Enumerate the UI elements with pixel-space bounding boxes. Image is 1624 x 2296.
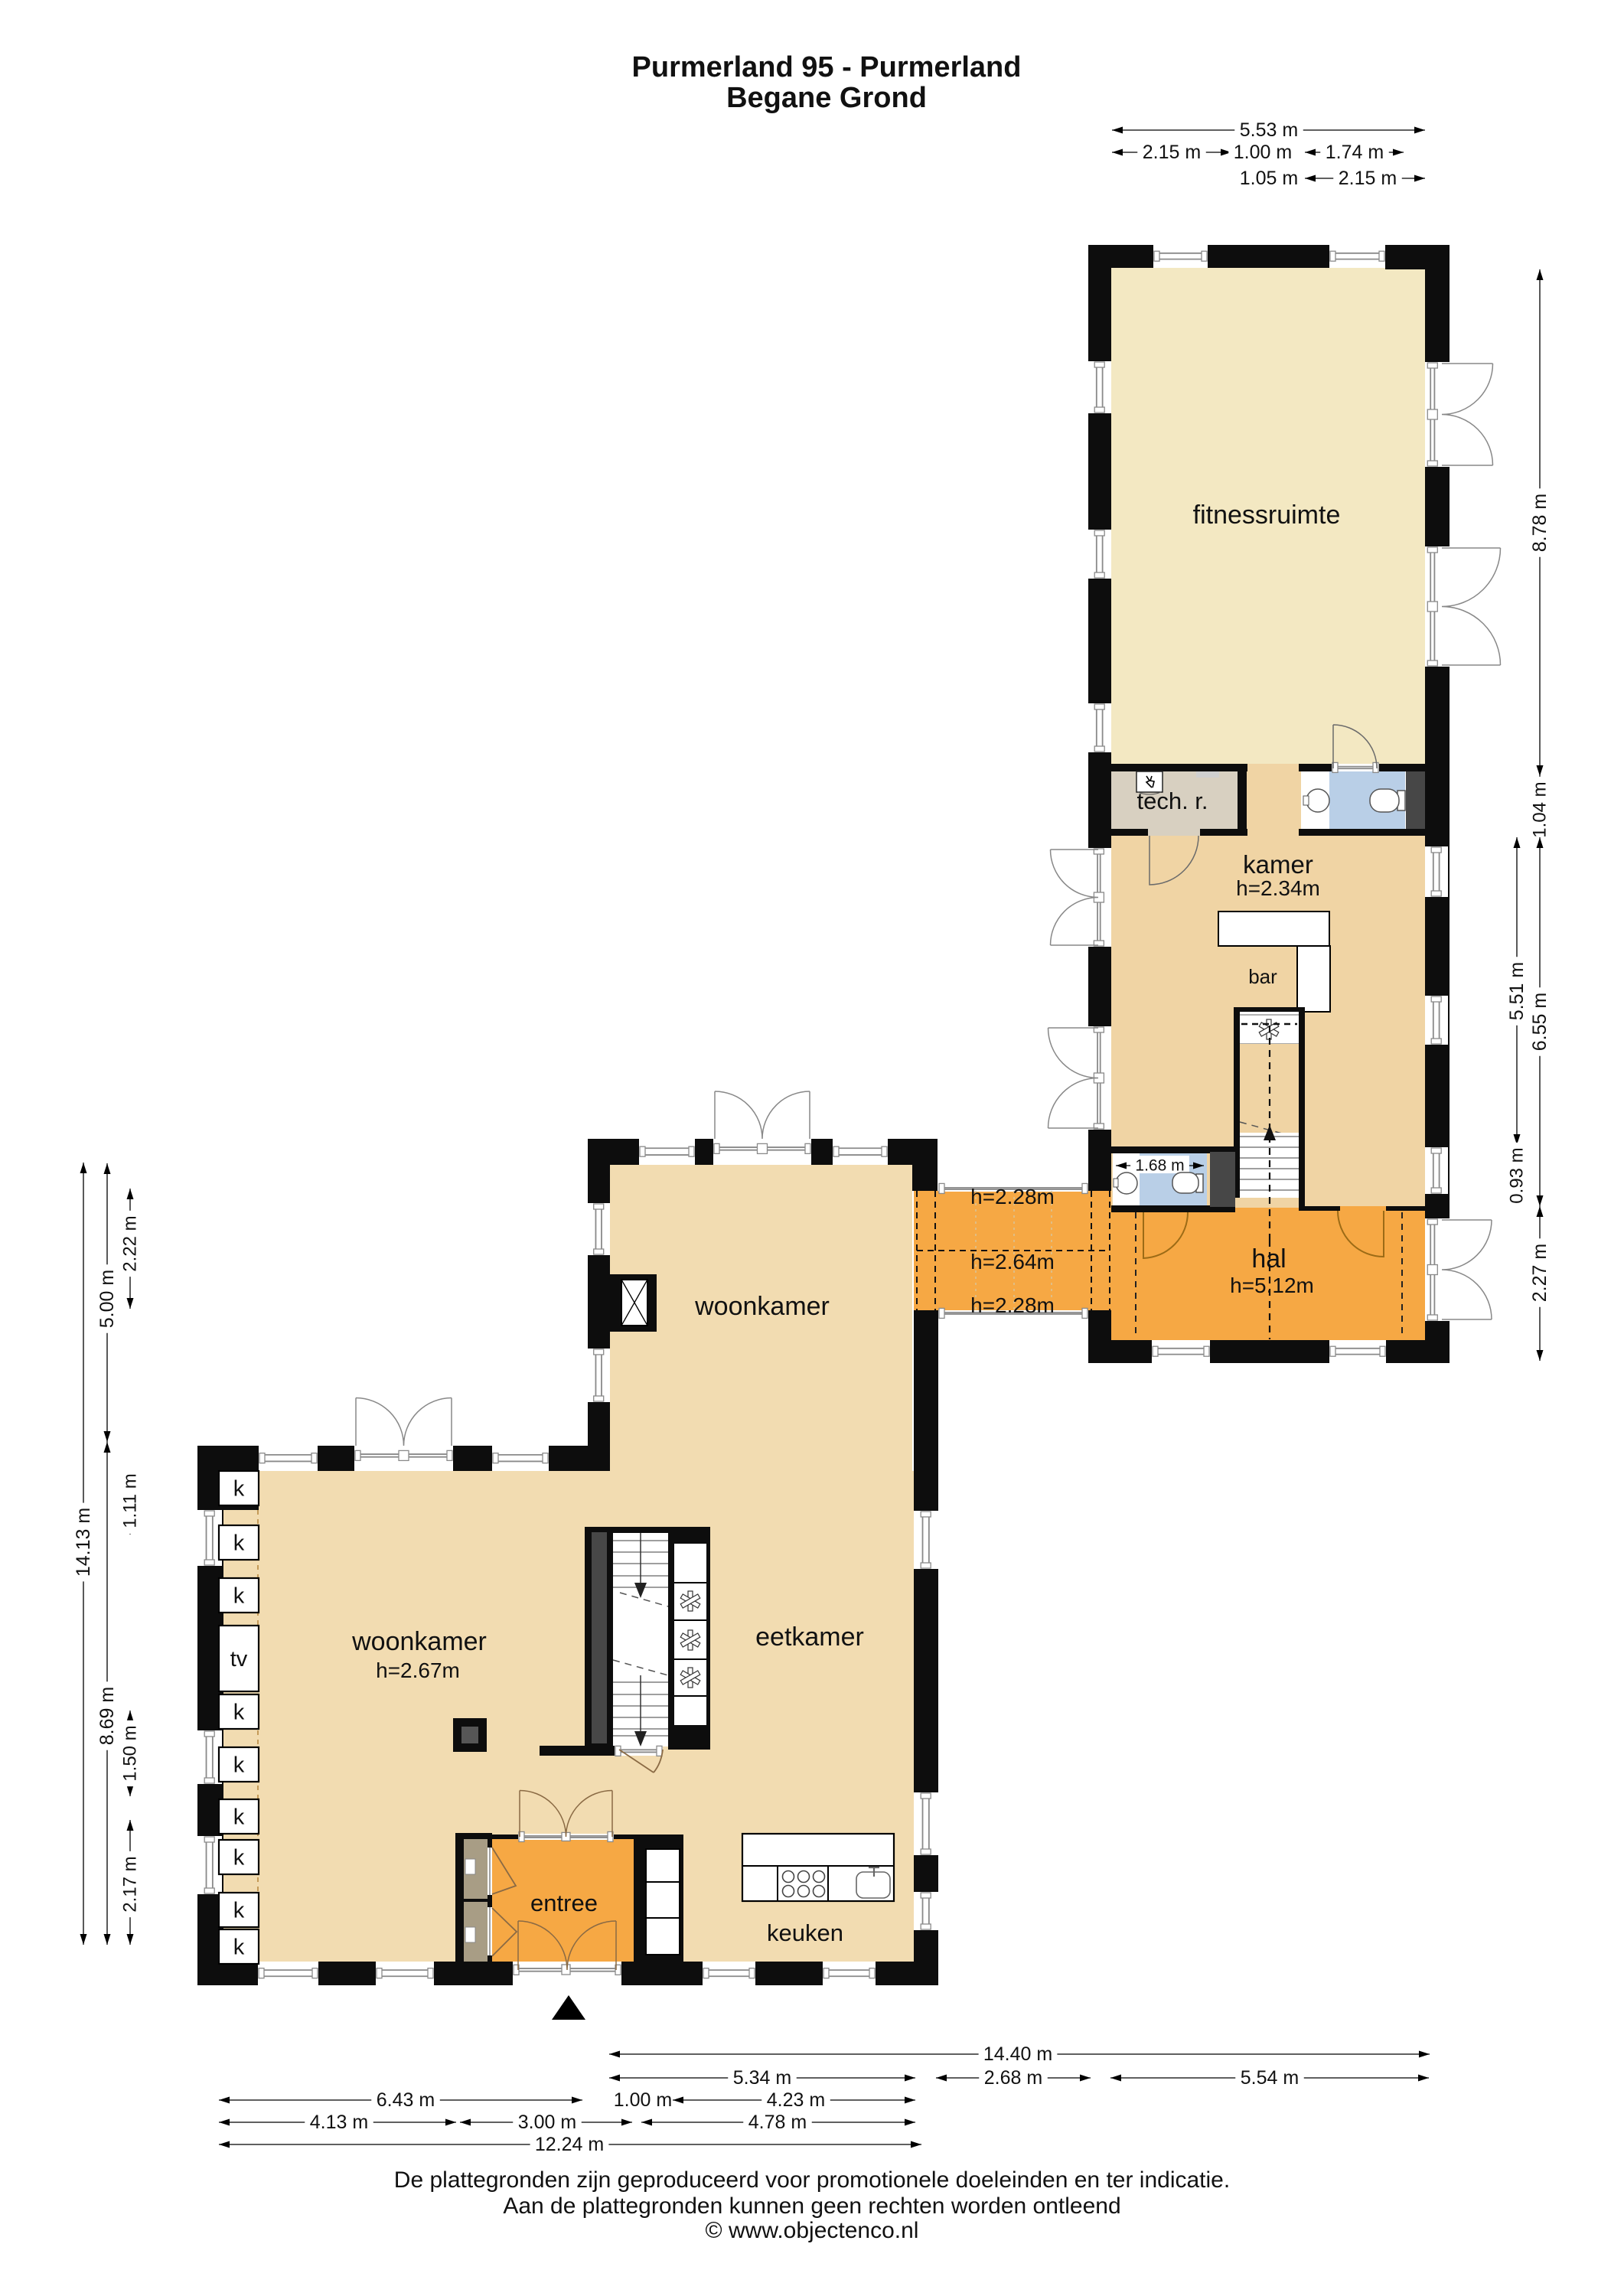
svg-text:keuken: keuken	[767, 1919, 843, 1946]
svg-text:4.13 m: 4.13 m	[310, 2112, 368, 2133]
svg-text:2.68 m: 2.68 m	[984, 2067, 1042, 2089]
svg-text:k: k	[233, 1753, 245, 1778]
svg-text:k: k	[233, 1936, 245, 1960]
svg-text:5.51 m: 5.51 m	[1506, 962, 1528, 1020]
svg-text:0.93 m: 0.93 m	[1507, 1147, 1528, 1203]
svg-text:1.00 m: 1.00 m	[614, 2089, 672, 2111]
svg-text:h=2.64m: h=2.64m	[970, 1250, 1055, 1274]
svg-text:1.11 m: 1.11 m	[120, 1473, 141, 1528]
svg-text:bar: bar	[1248, 965, 1277, 988]
svg-text:1.74 m: 1.74 m	[1326, 142, 1384, 163]
svg-text:2.22 m: 2.22 m	[120, 1215, 141, 1271]
svg-text:5.53 m: 5.53 m	[1240, 119, 1298, 141]
svg-text:2.27 m: 2.27 m	[1529, 1244, 1551, 1302]
svg-text:k: k	[233, 1899, 245, 1923]
svg-text:k: k	[233, 1531, 245, 1556]
svg-text:4.78 m: 4.78 m	[748, 2112, 807, 2133]
svg-text:k: k	[233, 1701, 245, 1725]
svg-text:k: k	[233, 1584, 245, 1609]
svg-text:14.40 m: 14.40 m	[983, 2043, 1052, 2065]
svg-text:hal: hal	[1251, 1244, 1286, 1274]
svg-text:2.17 m: 2.17 m	[120, 1856, 141, 1912]
svg-text:12.24 m: 12.24 m	[535, 2134, 604, 2155]
svg-text:h=2.28m: h=2.28m	[970, 1185, 1055, 1208]
svg-text:1.04 m: 1.04 m	[1530, 781, 1551, 837]
svg-text:8.78 m: 8.78 m	[1529, 494, 1551, 552]
svg-text:5.34 m: 5.34 m	[733, 2067, 791, 2089]
svg-text:kamer: kamer	[1243, 850, 1313, 879]
svg-text:h=5.12m: h=5.12m	[1230, 1274, 1314, 1297]
svg-text:2.15 m: 2.15 m	[1143, 142, 1201, 163]
svg-text:1.50 m: 1.50 m	[120, 1725, 141, 1781]
svg-text:entree: entree	[530, 1890, 598, 1916]
svg-text:1.68 m: 1.68 m	[1135, 1157, 1184, 1175]
svg-text:k: k	[233, 1846, 245, 1870]
svg-text:k: k	[233, 1805, 245, 1830]
svg-text:3.00 m: 3.00 m	[518, 2112, 576, 2133]
svg-text:14.13 m: 14.13 m	[73, 1508, 94, 1577]
svg-text:Begane Grond: Begane Grond	[726, 82, 927, 114]
svg-text:fitnessruimte: fitnessruimte	[1193, 501, 1341, 530]
svg-text:woonkamer: woonkamer	[351, 1627, 487, 1656]
svg-text:6.43 m: 6.43 m	[377, 2089, 435, 2111]
svg-text:4.23 m: 4.23 m	[767, 2089, 825, 2111]
svg-text:5.54 m: 5.54 m	[1241, 2067, 1299, 2089]
svg-text:h=2.28m: h=2.28m	[970, 1293, 1055, 1317]
svg-text:6.55 m: 6.55 m	[1529, 993, 1551, 1051]
svg-text:1.05 m: 1.05 m	[1240, 168, 1298, 189]
svg-text:eetkamer: eetkamer	[755, 1623, 864, 1652]
svg-text:tv: tv	[230, 1647, 248, 1671]
svg-text:© www.objectenco.nl: © www.objectenco.nl	[706, 2218, 919, 2243]
svg-text:8.69 m: 8.69 m	[96, 1687, 118, 1745]
svg-text:h=2.34m: h=2.34m	[1236, 876, 1320, 900]
svg-text:tech. r.: tech. r.	[1136, 788, 1208, 814]
svg-text:Purmerland 95 - Purmerland: Purmerland 95 - Purmerland	[632, 51, 1022, 83]
svg-text:5.00 m: 5.00 m	[96, 1270, 118, 1328]
svg-text:h=2.67m: h=2.67m	[376, 1658, 460, 1682]
svg-text:Aan de plattegronden kunnen ge: Aan de plattegronden kunnen geen rechten…	[503, 2193, 1120, 2219]
svg-text:2.15 m: 2.15 m	[1339, 168, 1397, 189]
svg-text:woonkamer: woonkamer	[694, 1292, 830, 1321]
svg-text:1.00 m: 1.00 m	[1234, 142, 1292, 163]
svg-text:De plattegronden zijn geproduc: De plattegronden zijn geproduceerd voor …	[394, 2167, 1230, 2193]
svg-text:k: k	[233, 1477, 245, 1502]
